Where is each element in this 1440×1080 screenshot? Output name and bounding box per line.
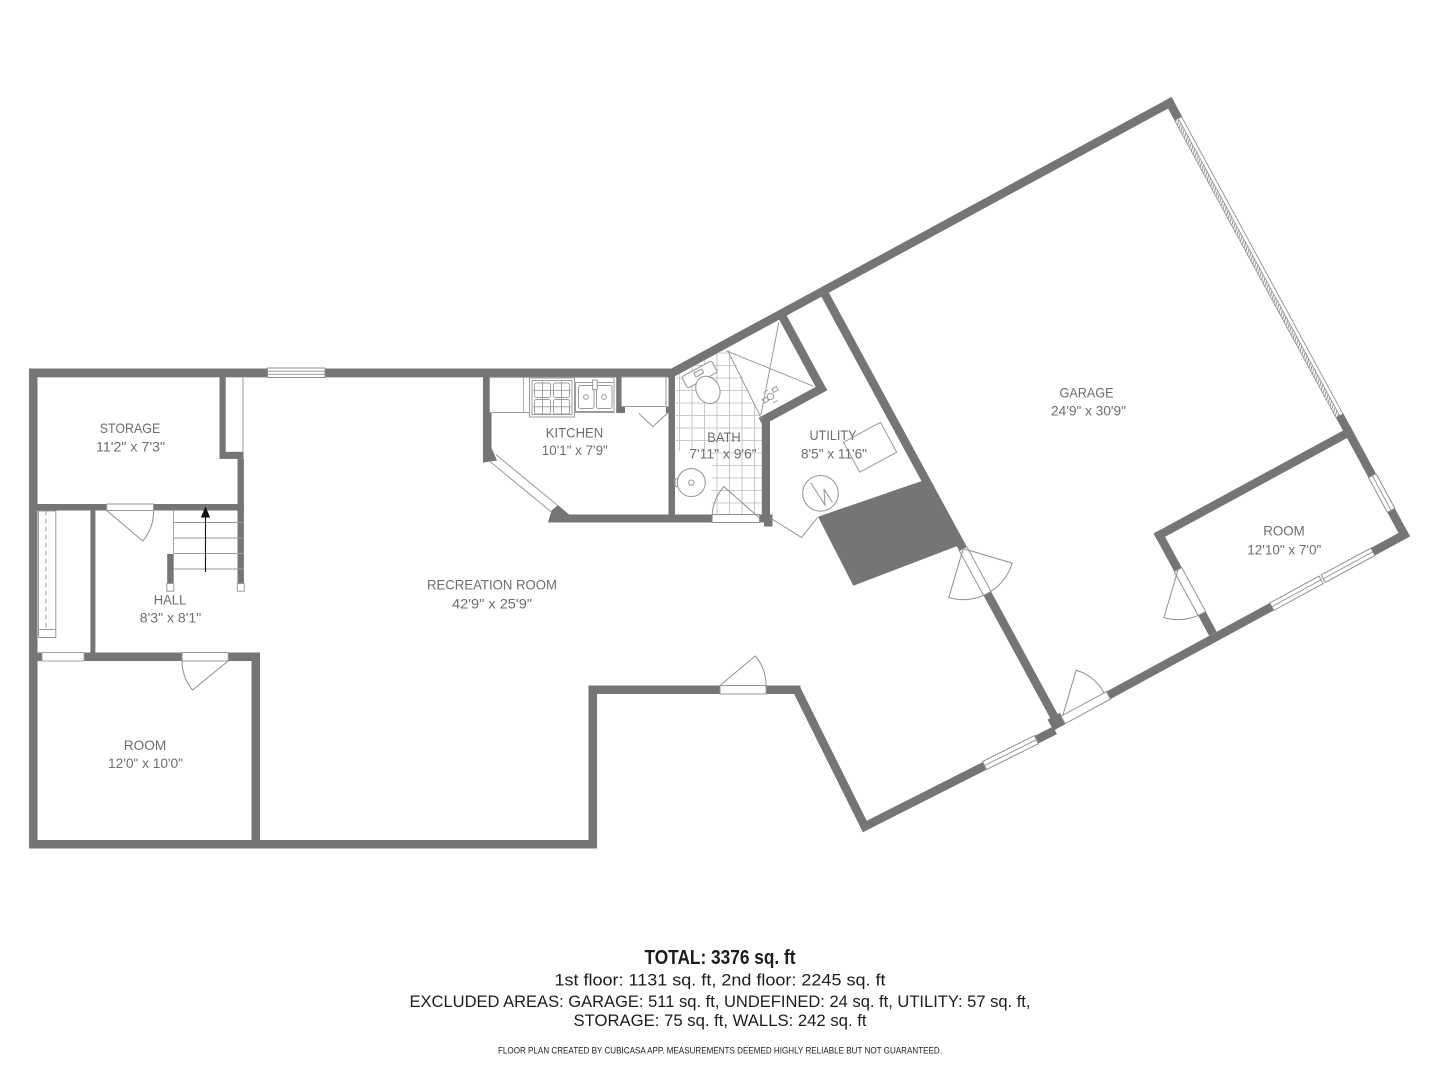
svg-text:24'9" x 30'9": 24'9" x 30'9" [1051,404,1126,419]
svg-text:GARAGE: GARAGE [1060,386,1114,401]
svg-text:11'2" x 7'3": 11'2" x 7'3" [96,440,165,455]
svg-text:12'0" x 10'0": 12'0" x 10'0" [108,756,183,771]
svg-text:42'9" x 25'9": 42'9" x 25'9" [452,597,532,612]
svg-text:8'5" x 11'6": 8'5" x 11'6" [801,447,867,462]
svg-text:1st floor: 1131 sq. ft, 2nd fl: 1st floor: 1131 sq. ft, 2nd floor: 2245 … [555,971,886,990]
svg-text:7'11" x 9'6": 7'11" x 9'6" [689,447,757,462]
svg-text:STORAGE: 75 sq. ft, WALLS: 242: STORAGE: 75 sq. ft, WALLS: 242 sq. ft [574,1011,867,1030]
svg-text:FLOOR PLAN CREATED BY CUBICASA: FLOOR PLAN CREATED BY CUBICASA APP. MEAS… [498,1046,942,1057]
svg-text:10'1" x 7'9": 10'1" x 7'9" [542,443,608,458]
svg-text:HALL: HALL [154,593,187,608]
svg-text:STORAGE: STORAGE [100,421,161,436]
svg-text:UTILITY: UTILITY [810,428,857,443]
svg-text:EXCLUDED AREAS: GARAGE: 511 sq: EXCLUDED AREAS: GARAGE: 511 sq. ft, UNDE… [410,992,1031,1011]
svg-text:KITCHEN: KITCHEN [546,426,604,441]
svg-text:8'3" x 8'1": 8'3" x 8'1" [140,611,202,626]
svg-text:BATH: BATH [707,430,741,445]
svg-text:12'10" x 7'0": 12'10" x 7'0" [1247,543,1321,558]
svg-text:TOTAL: 3376 sq. ft: TOTAL: 3376 sq. ft [645,947,796,969]
svg-text:RECREATION ROOM: RECREATION ROOM [427,578,557,593]
svg-text:ROOM: ROOM [124,738,167,753]
svg-text:ROOM: ROOM [1263,524,1305,539]
